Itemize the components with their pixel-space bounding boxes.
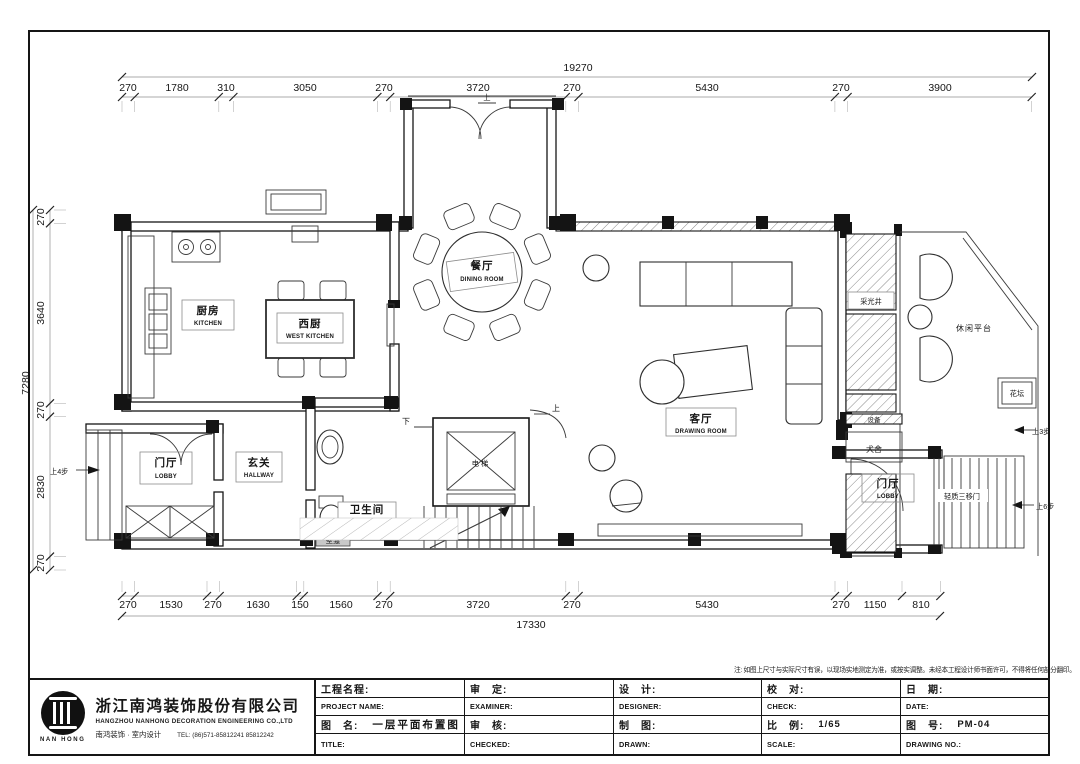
company-block: NAN HONG 浙江南鸿装饰股份有限公司 HANGZHOU NANHONG D… — [30, 680, 316, 754]
lounge-chair — [920, 254, 952, 300]
up-label: 上 — [483, 93, 490, 102]
dim-label: 3900 — [928, 82, 952, 94]
company-subtitle: 南鸿装饰 · 室内设计 — [95, 729, 161, 740]
kitchen-label: 厨房 — [197, 304, 220, 317]
left-lobby: 门厅 LOBBY — [86, 430, 192, 540]
dim-total-bottom: 17330 — [516, 619, 545, 631]
dimensions-bottom: 270 1530 270 1630 150 1560 270 3720 270 … — [119, 596, 940, 631]
chaise — [786, 308, 822, 424]
company-name-en: HANGZHOU NANHONG DECORATION ENGINEERING … — [95, 718, 308, 725]
dim-label: 270 — [204, 599, 222, 611]
dim-total-left: 7280 — [20, 371, 32, 395]
west-kitchen-label: 西厨 — [299, 318, 322, 330]
leisure-platform-label: 休闲平台 — [956, 323, 992, 333]
leisure-platform: 休闲平台 花坛 — [900, 232, 1038, 556]
west-kitchen-label-en: WEST KITCHEN — [286, 334, 334, 340]
light-well: 采光井 设备 犬舍 — [846, 234, 902, 552]
lobby-label: 门厅 — [877, 477, 900, 490]
dim-label: 5430 — [695, 82, 719, 94]
logo-text: NAN HONG — [40, 737, 85, 743]
flower-bed-label: 花坛 — [1010, 389, 1024, 398]
field-date-zh: 日 期: — [901, 680, 1048, 698]
dim-label: 270 — [35, 554, 47, 572]
kitchen: 厨房 KITCHEN — [128, 190, 326, 398]
company-tel: TEL: (86)571-85812241 85812242 — [177, 732, 274, 739]
field-checked-zh: 审 核: — [465, 716, 614, 734]
dim-label: 1530 — [159, 599, 183, 611]
drawing-room-label: 客厅 — [689, 412, 713, 425]
lobby-label: 门厅 — [155, 456, 178, 469]
sofa — [640, 262, 792, 306]
dim-label: 1150 — [864, 599, 887, 611]
dog-house-label: 犬舍 — [866, 444, 882, 454]
dim-label: 3640 — [35, 301, 47, 325]
field-examiner-zh: 审 定: — [465, 680, 614, 698]
dim-label: 270 — [375, 82, 393, 94]
light-well-label: 采光井 — [860, 297, 882, 306]
entry-door-leaf-icon — [479, 107, 511, 139]
dimensions-left: 270 3640 270 2830 270 7280 — [20, 208, 50, 572]
dim-label: 3720 — [466, 599, 490, 611]
dim-label: 270 — [375, 599, 393, 611]
field-drawn-zh: 制 图: — [614, 716, 762, 734]
dim-label: 270 — [35, 208, 47, 226]
floor-plan: 19270 270 1780 310 3050 270 3720 270 543… — [0, 0, 1080, 660]
scale-value: 1/65 — [818, 719, 841, 730]
field-project-en: PROJECT NAME: — [316, 698, 465, 716]
field-checked-en: CHECKED: — [465, 734, 614, 754]
dim-label: 1630 — [246, 599, 270, 611]
field-dwgno-zh: 图 号:PM-04 — [901, 716, 1048, 734]
company-name: 浙江南鸿装饰股份有限公司 — [95, 694, 308, 716]
dim-label: 310 — [217, 82, 235, 94]
toilet-label: 卫生间 — [350, 503, 385, 516]
dining-label-en: DINING ROOM — [460, 277, 504, 283]
washbasin-icon — [317, 430, 343, 464]
dim-label: 270 — [563, 82, 581, 94]
dim-label: 270 — [832, 82, 850, 94]
kitchen-label-en: KITCHEN — [194, 321, 222, 327]
coffee-table — [674, 346, 753, 399]
title-block-table: 工程名程: 审 定: 设 计: 校 对: 日 期: PROJECT NAME: … — [316, 680, 1048, 754]
dim-label: 270 — [563, 599, 581, 611]
dim-label: 1780 — [165, 82, 189, 94]
down-label: 下 — [402, 417, 410, 426]
field-scale-en: SCALE: — [762, 734, 901, 754]
right-lobby: 门厅 LOBBY 轻质三移门 — [862, 474, 988, 502]
up-label: 上 — [552, 404, 560, 413]
up6-label: 上6步 — [1036, 502, 1054, 511]
lounge-chair — [920, 336, 952, 382]
drawing-room: 客厅 DRAWING ROOM — [583, 255, 822, 536]
drawing-number: PM-04 — [957, 719, 990, 730]
drawing-title: 一层平面布置图 — [372, 717, 460, 732]
field-examiner-en: EXAMINER: — [465, 698, 614, 716]
title-block: NAN HONG 浙江南鸿装饰股份有限公司 HANGZHOU NANHONG D… — [30, 678, 1048, 754]
dim-label: 3050 — [293, 82, 317, 94]
dimensions-top: 19270 270 1780 310 3050 270 3720 270 543… — [119, 62, 1032, 97]
hallway-label-en: HALLWAY — [244, 473, 274, 479]
dim-label: 2830 — [35, 475, 47, 499]
sliding-door-label: 轻质三移门 — [944, 492, 980, 501]
dim-label: 1560 — [329, 599, 353, 611]
sliding-panel-icon — [387, 304, 394, 346]
lobby-label-en: LOBBY — [877, 494, 899, 500]
field-designer-en: DESIGNER: — [614, 698, 762, 716]
hallway-label: 玄关 — [248, 456, 271, 469]
west-kitchen: 西厨 WEST KITCHEN — [266, 281, 354, 377]
equipment-label: 设备 — [868, 415, 882, 424]
cooktop-icon — [172, 232, 220, 262]
up4-label: 上4步 — [50, 467, 68, 476]
dim-label: 270 — [119, 599, 137, 611]
dining-table — [442, 232, 522, 312]
drawing-room-label-en: DRAWING ROOM — [675, 429, 727, 435]
field-drawn-en: DRAWN: — [614, 734, 762, 754]
field-title-en: TITLE: — [316, 734, 465, 754]
elevator: 电梯 — [433, 418, 529, 506]
up3-label: 上3步 — [1032, 427, 1050, 436]
dim-label: 150 — [291, 599, 309, 611]
dim-label: 270 — [832, 599, 850, 611]
dim-label: 270 — [35, 401, 47, 419]
nanhong-logo-icon — [41, 691, 85, 735]
field-scale-zh: 比 例:1/65 — [762, 716, 901, 734]
field-date-en: DATE: — [901, 698, 1048, 716]
field-check-zh: 校 对: — [762, 680, 901, 698]
dining-label: 餐厅 — [470, 259, 494, 272]
dim-total-top: 19270 — [563, 62, 592, 74]
lobby-door-leaf-icon — [181, 434, 212, 465]
company-logo: NAN HONG — [40, 691, 85, 743]
lobby-label-en: LOBBY — [155, 474, 177, 480]
field-dwgno-en: DRAWING NO.: — [901, 734, 1048, 754]
field-title-zh: 图 名:一层平面布置图 — [316, 716, 465, 734]
entry-door-leaf-icon — [449, 107, 481, 139]
field-check-en: CHECK: — [762, 698, 901, 716]
elevator-label: 电梯 — [472, 459, 490, 468]
dim-label: 5430 — [695, 599, 719, 611]
field-designer-zh: 设 计: — [614, 680, 762, 698]
entry-steps — [86, 430, 122, 540]
dining-room: 餐厅 DINING ROOM — [412, 202, 552, 342]
dim-label: 810 — [912, 599, 930, 611]
dim-label: 270 — [119, 82, 137, 94]
revision-note: 注: 如图上尺寸与实际尺寸有误，以现场实地测定为准，或按实调整。未经本工程设计师… — [734, 664, 1052, 674]
field-project-zh: 工程名程: — [316, 680, 465, 698]
